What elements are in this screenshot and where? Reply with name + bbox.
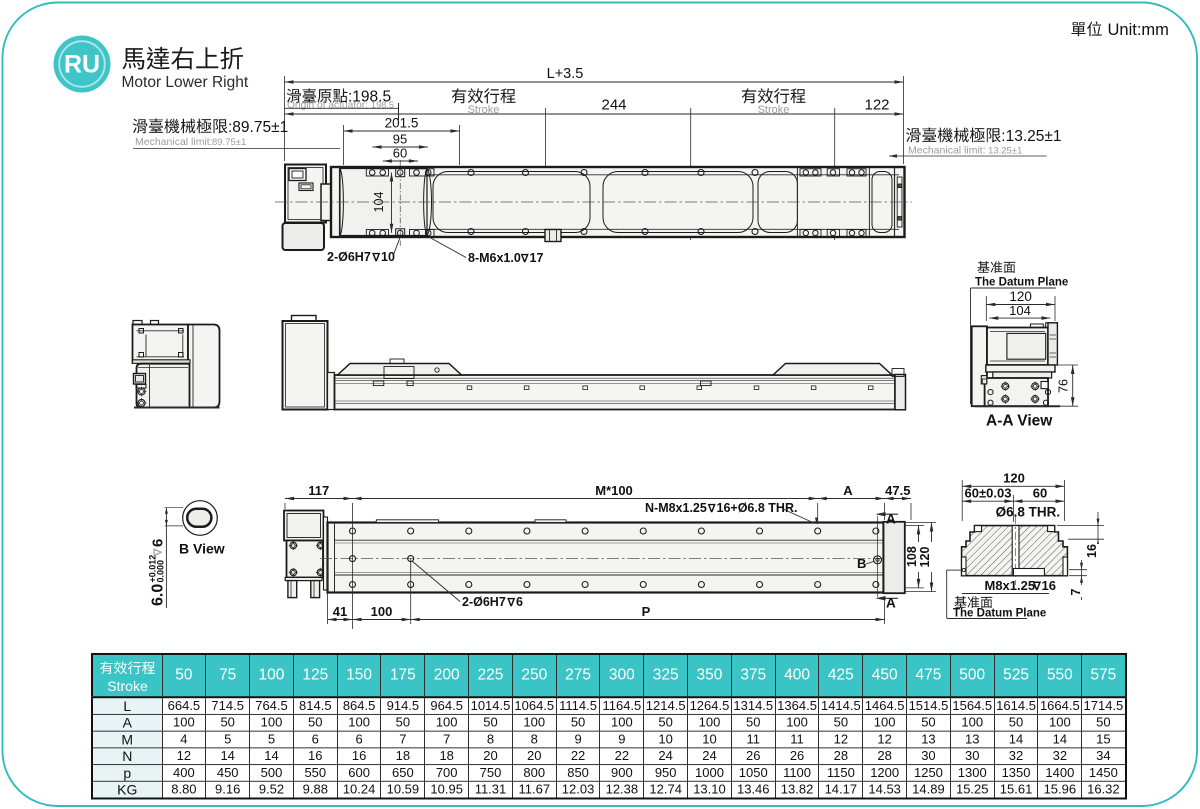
svg-text:41: 41: [333, 604, 347, 619]
svg-text:M*100: M*100: [595, 483, 633, 498]
svg-text::13.25±1: :13.25±1: [1001, 128, 1061, 145]
svg-text:120: 120: [1009, 289, 1032, 304]
svg-text:16+Ø6.8 THR.: 16+Ø6.8 THR.: [717, 501, 798, 515]
svg-text:The Datum Plane: The Datum Plane: [975, 277, 1068, 289]
svg-text:A: A: [886, 596, 896, 611]
svg-text:17: 17: [530, 251, 544, 265]
svg-text:∇: ∇: [372, 252, 381, 264]
svg-text:Stroke: Stroke: [107, 678, 148, 694]
svg-text:89.75±1: 89.75±1: [212, 137, 246, 148]
svg-text:47.5: 47.5: [885, 483, 910, 498]
svg-text:The Datum Plane: The Datum Plane: [953, 608, 1046, 620]
svg-text:120: 120: [918, 547, 932, 568]
svg-text:A: A: [843, 483, 853, 498]
svg-text:Ø6.8 THR.: Ø6.8 THR.: [996, 505, 1061, 520]
svg-text:N-M8x1.25: N-M8x1.25: [645, 501, 707, 515]
svg-text:7: 7: [1069, 588, 1083, 595]
svg-text:16: 16: [1085, 544, 1099, 558]
svg-text:16: 16: [1042, 578, 1056, 593]
svg-text:6.0: 6.0: [150, 584, 167, 606]
svg-text:117: 117: [308, 483, 329, 498]
svg-text:76: 76: [1057, 379, 1071, 393]
svg-text:M8x1.25: M8x1.25: [985, 578, 1036, 593]
svg-text:8-M6x1.0: 8-M6x1.0: [468, 251, 521, 265]
svg-text:Motor Lower Right: Motor Lower Right: [122, 74, 249, 91]
svg-text:108: 108: [905, 546, 919, 567]
svg-text:∇: ∇: [520, 253, 529, 265]
svg-text:A-A View: A-A View: [986, 413, 1053, 430]
svg-text:Mechanical limit:: Mechanical limit:: [908, 145, 986, 157]
svg-text:60±0.03: 60±0.03: [965, 486, 1012, 501]
svg-text:B View: B View: [179, 541, 225, 557]
svg-text:6: 6: [516, 595, 523, 609]
svg-text:122: 122: [864, 97, 889, 114]
svg-text:2-Ø6H7: 2-Ø6H7: [462, 595, 506, 609]
svg-text:60: 60: [1033, 486, 1047, 501]
svg-text:Mechanical limit:: Mechanical limit:: [135, 136, 213, 148]
svg-text:∇: ∇: [707, 503, 716, 515]
svg-text:10: 10: [381, 250, 395, 264]
svg-text:2-Ø6H7: 2-Ø6H7: [327, 250, 371, 264]
svg-text:∇: ∇: [1032, 581, 1042, 593]
svg-text:P: P: [642, 604, 651, 619]
svg-text:RU: RU: [64, 51, 100, 79]
svg-text:201.5: 201.5: [385, 116, 419, 131]
svg-text:Unit:mm: Unit:mm: [1108, 21, 1169, 39]
svg-text:104: 104: [1009, 303, 1031, 318]
svg-text:∇: ∇: [507, 597, 516, 609]
svg-text:A: A: [886, 512, 896, 527]
svg-text:Origin of actuator:: Origin of actuator:: [287, 100, 368, 111]
svg-text:0.000: 0.000: [156, 560, 166, 583]
svg-text:∇: ∇: [153, 548, 165, 557]
svg-text:120: 120: [1003, 471, 1025, 486]
svg-text:B: B: [857, 556, 866, 571]
svg-text::89.75±1: :89.75±1: [228, 119, 288, 136]
svg-text:100: 100: [371, 604, 393, 619]
svg-text:6: 6: [150, 539, 167, 547]
svg-text:L+3.5: L+3.5: [547, 66, 584, 82]
svg-text:95: 95: [393, 132, 407, 147]
svg-text:13.25±1: 13.25±1: [988, 146, 1022, 157]
svg-text:244: 244: [601, 97, 626, 114]
svg-text:60: 60: [393, 146, 407, 161]
